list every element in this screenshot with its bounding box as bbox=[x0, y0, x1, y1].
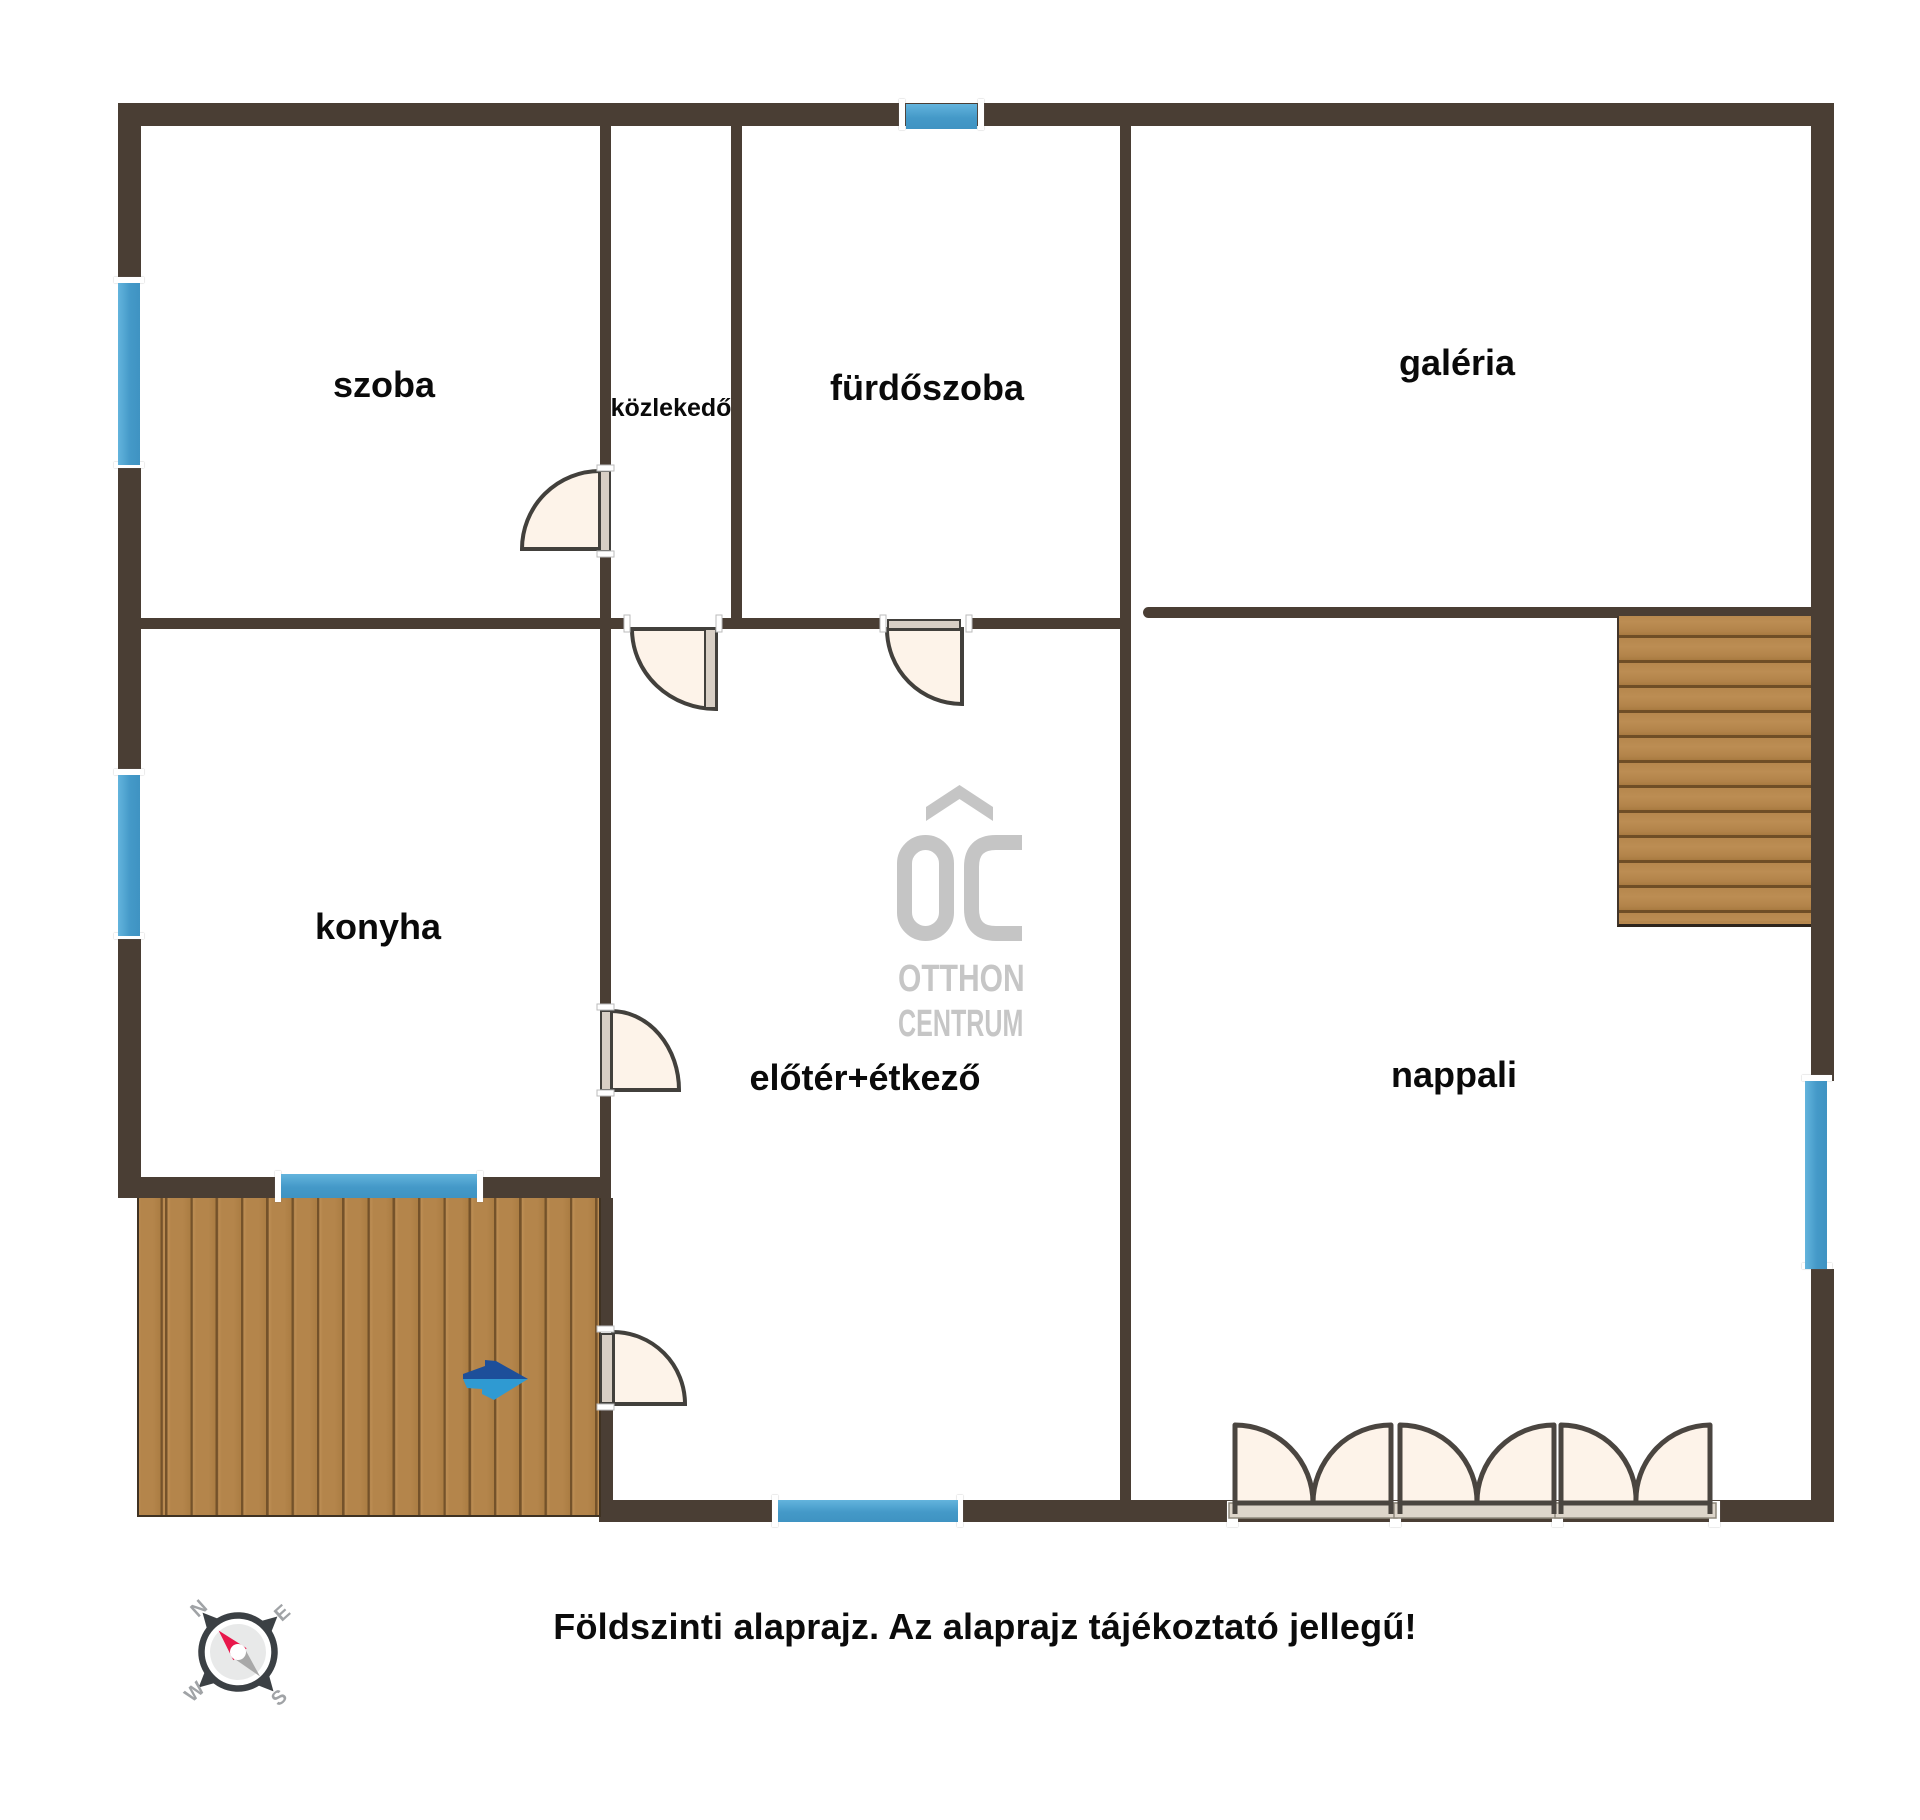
svg-text:CENTRUM: CENTRUM bbox=[898, 1002, 1023, 1044]
svg-text:OTTHON: OTTHON bbox=[898, 958, 1025, 1000]
